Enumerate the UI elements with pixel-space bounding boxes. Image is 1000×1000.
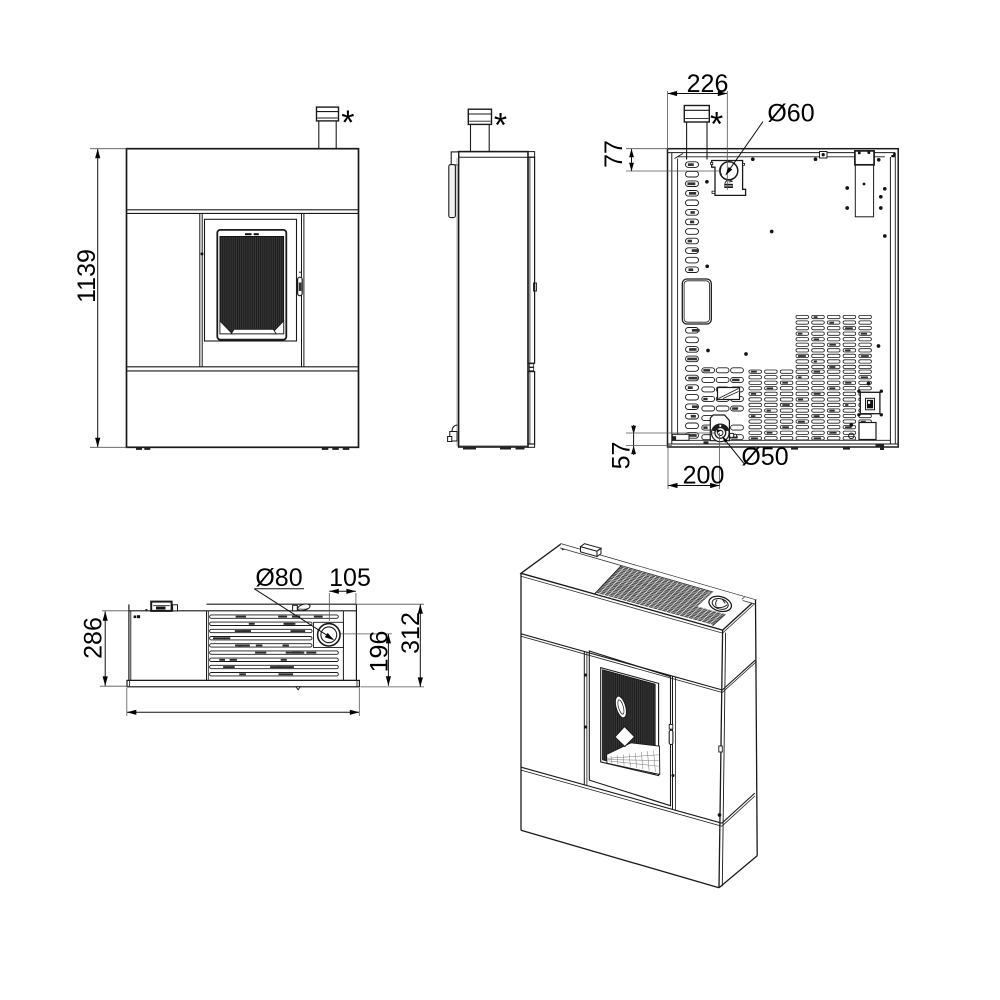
svg-text:*: * bbox=[494, 107, 507, 145]
svg-text:*: * bbox=[341, 104, 354, 142]
svg-text:Ø60: Ø60 bbox=[767, 100, 814, 128]
svg-text:Ø80: Ø80 bbox=[255, 564, 302, 592]
svg-text:Ø50: Ø50 bbox=[741, 443, 788, 471]
svg-text:*: * bbox=[710, 106, 723, 144]
svg-text:196: 196 bbox=[366, 631, 394, 673]
svg-text:57: 57 bbox=[608, 442, 636, 470]
svg-text:1139: 1139 bbox=[73, 249, 101, 303]
svg-text:77: 77 bbox=[600, 140, 628, 168]
svg-text:200: 200 bbox=[683, 462, 725, 490]
svg-text:286: 286 bbox=[80, 617, 108, 659]
svg-text:312: 312 bbox=[397, 612, 425, 654]
svg-text:105: 105 bbox=[329, 564, 371, 592]
svg-text:226: 226 bbox=[687, 70, 729, 98]
